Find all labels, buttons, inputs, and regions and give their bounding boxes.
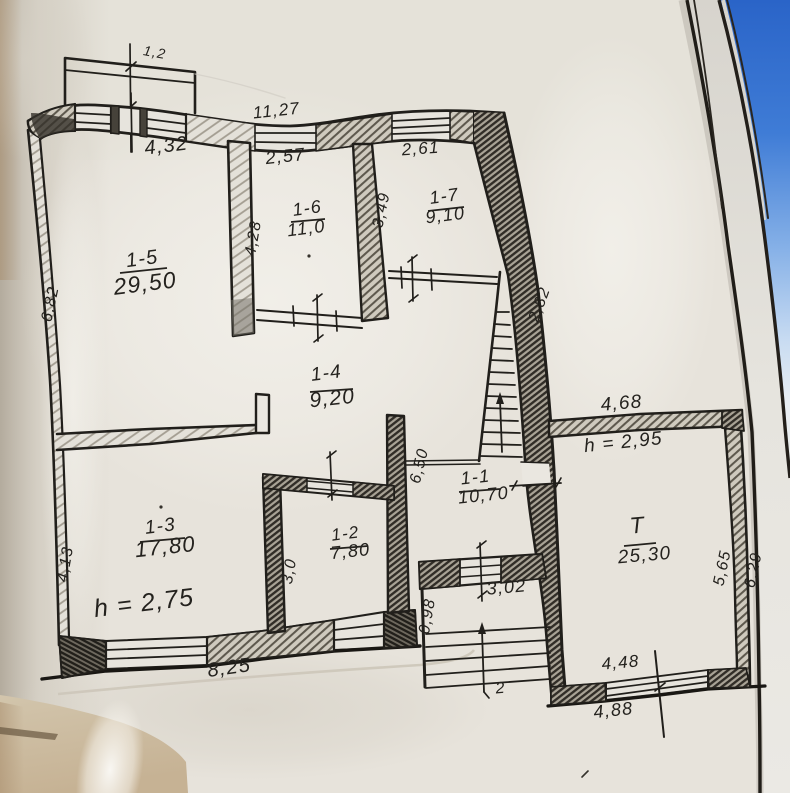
svg-text:T: T — [629, 511, 647, 538]
svg-text:2,61: 2,61 — [400, 138, 440, 160]
svg-text:2: 2 — [494, 680, 507, 698]
svg-text:9,20: 9,20 — [308, 385, 356, 413]
svg-text:1-4: 1-4 — [310, 361, 343, 386]
svg-text:7,80: 7,80 — [330, 539, 372, 563]
svg-text:3,02: 3,02 — [486, 575, 527, 598]
svg-text:4,68: 4,68 — [600, 391, 643, 416]
svg-text:4,88: 4,88 — [593, 698, 635, 722]
svg-text:4,48: 4,48 — [601, 651, 640, 673]
svg-text:2,57: 2,57 — [264, 144, 307, 168]
